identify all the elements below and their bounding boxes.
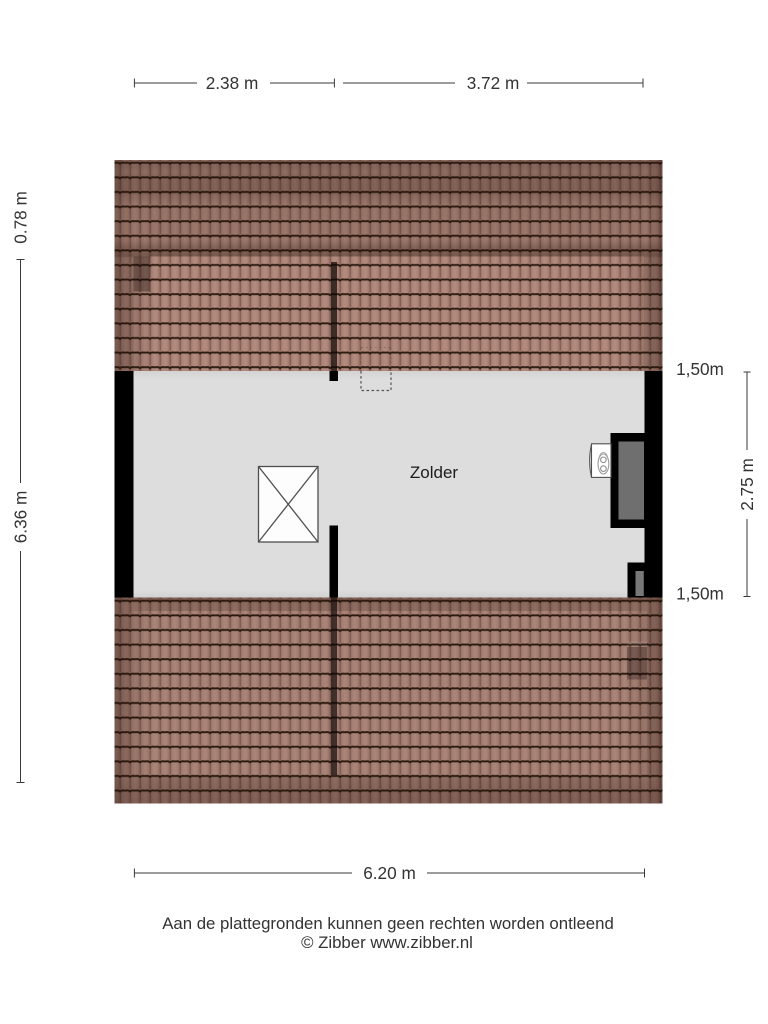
svg-text:© Zibber www.zibber.nl: © Zibber www.zibber.nl xyxy=(301,933,473,952)
svg-text:1,50m: 1,50m xyxy=(676,584,724,604)
svg-text:Aan de plattegronden kunnen ge: Aan de plattegronden kunnen geen rechten… xyxy=(162,914,614,933)
svg-text:6.36 m: 6.36 m xyxy=(11,491,31,544)
svg-text:1,50m: 1,50m xyxy=(676,359,724,379)
svg-text:6.20 m: 6.20 m xyxy=(363,863,416,883)
svg-text:0.78 m: 0.78 m xyxy=(11,191,31,244)
svg-text:3.72 m: 3.72 m xyxy=(467,73,520,93)
svg-text:Zolder: Zolder xyxy=(410,463,459,482)
svg-text:2.38 m: 2.38 m xyxy=(206,73,259,93)
svg-text:2.75 m: 2.75 m xyxy=(737,458,757,511)
